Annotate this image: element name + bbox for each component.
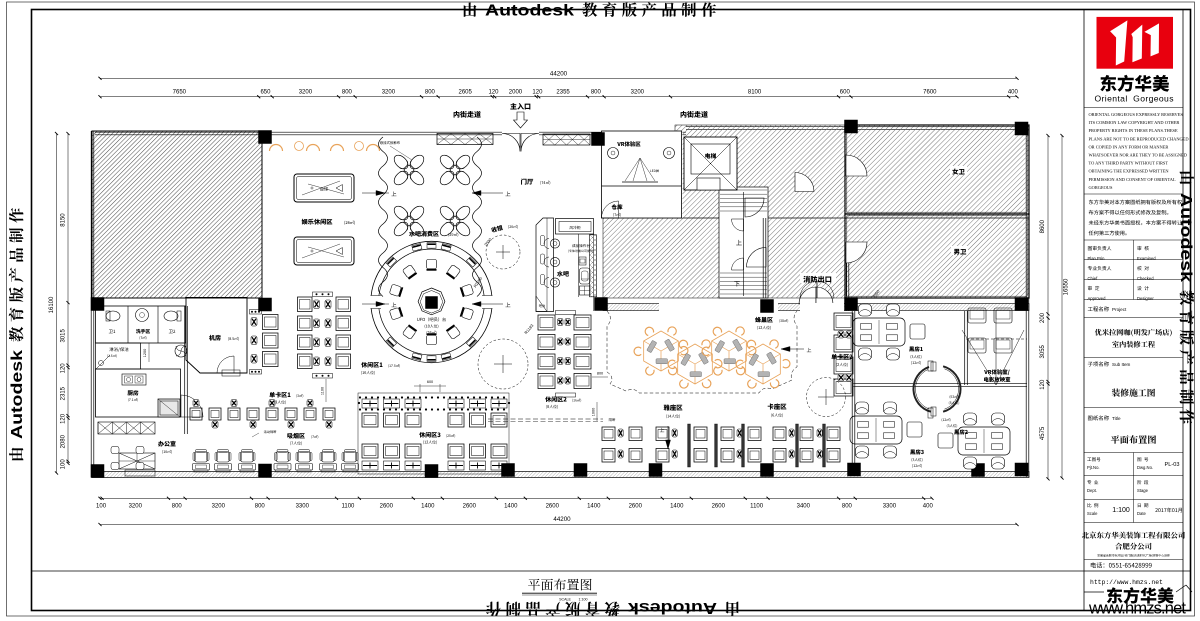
svg-text:Examined: Examined [1137,256,1156,261]
svg-text:3055: 3055 [1040,344,1046,358]
svg-text:1000: 1000 [592,408,596,416]
svg-text:600: 600 [840,90,851,96]
svg-text:200: 200 [1040,312,1046,323]
svg-text:800: 800 [342,90,353,96]
svg-text:7650: 7650 [173,90,187,96]
svg-text:2605: 2605 [459,90,473,96]
svg-text:800: 800 [172,504,183,510]
svg-text:Autodesk: Autodesk [9,350,26,439]
svg-text:800: 800 [597,372,603,376]
svg-text:PLANS ARE NOT TO BE REPRODUCED: PLANS ARE NOT TO BE REPRODUCED CHANGED [1089,136,1189,141]
svg-text:800: 800 [425,90,436,96]
svg-text:4575: 4575 [1040,426,1046,440]
svg-text:Stage: Stage [1137,488,1149,493]
svg-text:Plan.Prin: Plan.Prin [1088,256,1106,261]
svg-text:WHATSOEVER NOR ARE THEY TO BE: WHATSOEVER NOR ARE THEY TO BE ASSIGNED [1089,153,1187,158]
svg-text:3200: 3200 [129,504,143,510]
svg-text:3200: 3200 [382,90,396,96]
svg-text:120: 120 [532,90,543,96]
svg-text:8150: 8150 [61,213,67,227]
svg-text:1100: 1100 [321,387,325,395]
svg-text:Designer: Designer [1137,296,1154,301]
svg-text:120: 120 [1040,379,1046,390]
svg-text:Project: Project [1112,307,1127,312]
svg-text:Scale: Scale [1087,511,1098,516]
svg-text:800: 800 [255,504,266,510]
svg-text:600: 600 [427,380,433,384]
svg-text:OBTAINING THE EXPRESSED WRITTE: OBTAINING THE EXPRESSED WRITTEN [1089,169,1170,174]
svg-text:44200: 44200 [550,71,568,78]
svg-text:2600: 2600 [463,504,477,510]
svg-text:1400: 1400 [421,504,435,510]
svg-text:Date: Date [1137,511,1147,516]
svg-text:1400: 1400 [587,504,601,510]
svg-text:100: 100 [61,459,67,470]
svg-text:ITS COMMON LAW COPYRIGHT AND O: ITS COMMON LAW COPYRIGHT AND OTHER [1089,120,1180,125]
svg-text:100: 100 [96,504,107,510]
svg-text:1:100: 1:100 [1112,507,1130,514]
svg-text:TO ANY THIRD PARTY WITHOUT FIR: TO ANY THIRD PARTY WITHOUT FIRST [1089,161,1169,166]
svg-text:400: 400 [1008,90,1019,96]
svg-text:3200: 3200 [299,90,313,96]
svg-text:2080: 2080 [61,434,67,448]
svg-text:800: 800 [591,90,602,96]
svg-text:3400: 3400 [797,504,811,510]
svg-text:OR COPIED IN ANY FORM OR MANNE: OR COPIED IN ANY FORM OR MANNER [1089,144,1169,149]
svg-text:Oriental Gorgeous: Oriental Gorgeous [1095,94,1174,104]
svg-text:PL-03: PL-03 [1165,462,1180,468]
svg-text:2600: 2600 [380,504,394,510]
svg-text:SCALE: SCALE [559,598,571,602]
svg-text:650: 650 [260,90,271,96]
svg-text:1400: 1400 [670,504,684,510]
svg-text:120: 120 [61,363,67,374]
svg-text:2600: 2600 [629,504,643,510]
svg-text:3300: 3300 [296,504,310,510]
svg-text:400: 400 [923,504,934,510]
svg-text:7600: 7600 [923,90,937,96]
svg-text:2000: 2000 [509,90,523,96]
svg-text:1:100: 1:100 [579,598,588,602]
svg-text:3015: 3015 [61,329,67,343]
svg-text:1200: 1200 [143,349,147,357]
svg-text:800: 800 [842,504,853,510]
svg-text:3200: 3200 [212,504,226,510]
svg-text:Autodesk: Autodesk [628,599,717,616]
svg-text:Autodesk: Autodesk [485,3,574,20]
svg-text:3200: 3200 [631,90,645,96]
svg-text:16550: 16550 [1064,278,1070,295]
svg-text:Dwg.No.: Dwg.No. [1137,465,1153,470]
svg-text:Approved: Approved [1088,296,1107,301]
svg-text:44200: 44200 [553,516,571,523]
svg-text:2355: 2355 [556,90,570,96]
svg-text:Checked: Checked [1137,276,1154,281]
svg-text:www.hmzs.net: www.hmzs.net [1088,600,1186,618]
svg-text:8100: 8100 [748,90,762,96]
svg-text:ORIENTAL GORGEOUS EXPRESSLY RE: ORIENTAL GORGEOUS EXPRESSLY RESERVES [1089,112,1184,117]
svg-text:PERMISSION AND CONSENT OF ORIE: PERMISSION AND CONSENT OF ORIENTAL [1089,177,1176,182]
svg-text:120: 120 [488,90,499,96]
svg-text:PROPERTY RIGHTS IN THESE PLANS: PROPERTY RIGHTS IN THESE PLANS.THESE [1089,128,1178,133]
svg-text:Sub Item: Sub Item [1112,362,1131,367]
svg-text:120: 120 [61,413,67,424]
svg-text:16100: 16100 [49,296,55,313]
svg-text:Autodesk: Autodesk [1177,193,1194,282]
svg-text:1400: 1400 [504,504,518,510]
svg-text:2600: 2600 [546,504,560,510]
svg-text:1100: 1100 [750,504,764,510]
svg-text:2315: 2315 [61,386,67,400]
svg-text:3300: 3300 [883,504,897,510]
svg-text:8600: 8600 [1040,219,1046,233]
svg-text:Chief: Chief [1088,276,1099,281]
svg-text:2600: 2600 [712,504,726,510]
svg-text:Pjt.No.: Pjt.No. [1087,465,1100,470]
svg-text:GORGEOUS: GORGEOUS [1089,185,1113,190]
svg-text:Title: Title [1112,416,1121,421]
svg-text:1100: 1100 [341,504,355,510]
svg-text:http://www.hmzs.net: http://www.hmzs.net [1090,579,1163,586]
svg-text:Dept.: Dept. [1087,488,1097,493]
